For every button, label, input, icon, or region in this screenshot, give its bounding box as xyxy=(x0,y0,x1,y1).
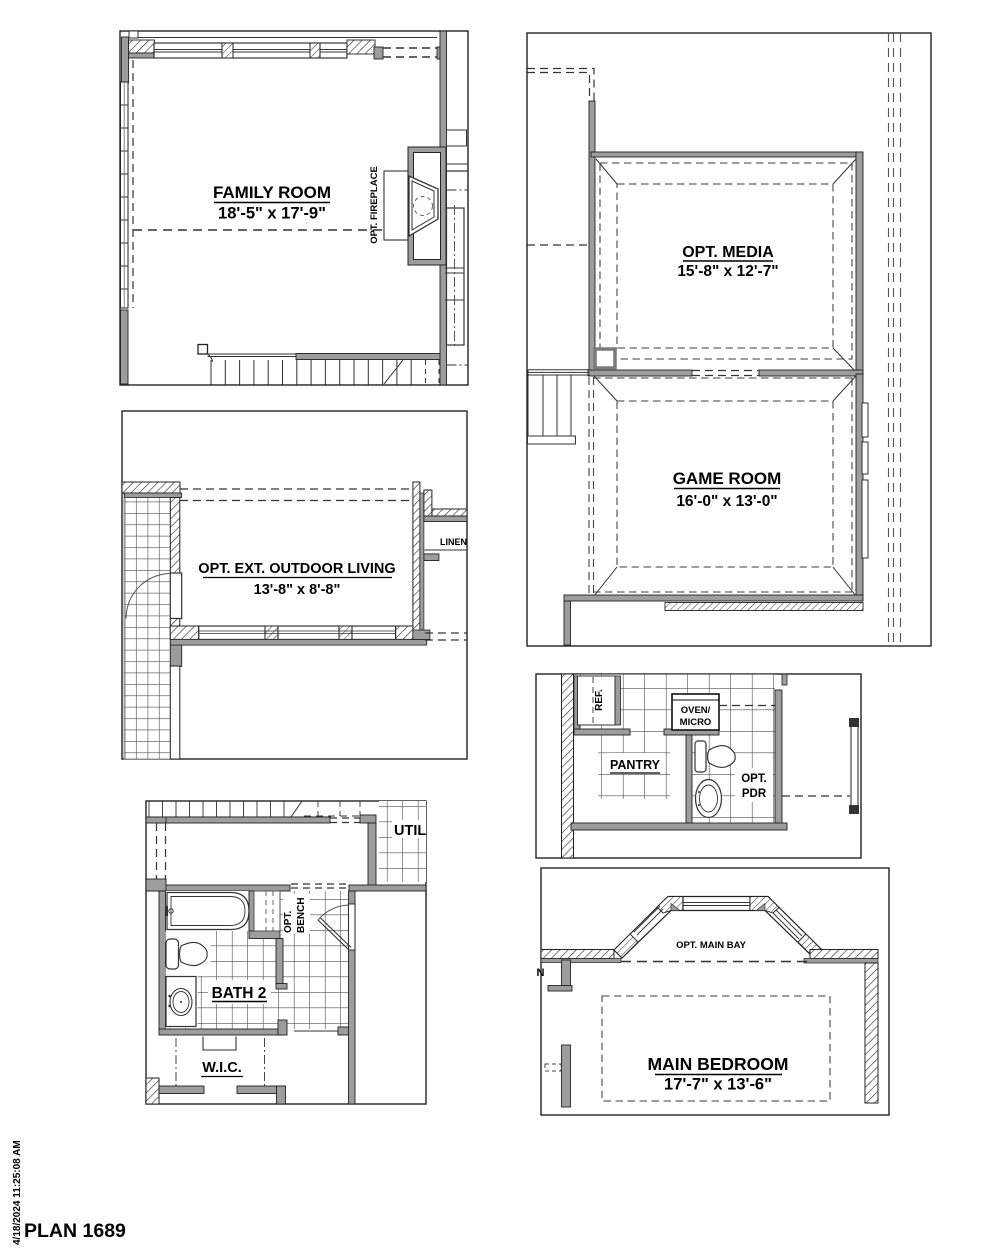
svg-text:UTIL: UTIL xyxy=(394,823,426,839)
svg-text:PANTRY: PANTRY xyxy=(610,758,661,772)
svg-text:16'-0" x 13'-0": 16'-0" x 13'-0" xyxy=(676,493,777,510)
svg-text:17'-7" x 13'-6": 17'-7" x 13'-6" xyxy=(664,1076,772,1094)
svg-text:MICRO: MICRO xyxy=(680,717,712,728)
svg-text:18'-5" x 17'-9": 18'-5" x 17'-9" xyxy=(218,205,326,223)
svg-text:PLAN 1689: PLAN 1689 xyxy=(24,1220,126,1242)
svg-text:N: N xyxy=(537,967,545,979)
svg-text:OPT. MAIN BAY: OPT. MAIN BAY xyxy=(676,940,747,951)
svg-text:BENCH: BENCH xyxy=(296,897,307,933)
svg-text:OPT. EXT. OUTDOOR LIVING: OPT. EXT. OUTDOOR LIVING xyxy=(198,561,395,577)
svg-text:13'-8" x 8'-8": 13'-8" x 8'-8" xyxy=(254,582,341,598)
svg-text:MAIN BEDROOM: MAIN BEDROOM xyxy=(648,1054,789,1074)
svg-text:4/18/2024 11:25:08 AM: 4/18/2024 11:25:08 AM xyxy=(12,1140,23,1245)
svg-text:GAME ROOM: GAME ROOM xyxy=(673,469,782,488)
svg-text:OPT.: OPT. xyxy=(741,773,767,785)
svg-text:OVEN/: OVEN/ xyxy=(681,705,711,716)
svg-text:OPT.: OPT. xyxy=(283,911,294,933)
svg-text:OPT. FIREPLACE: OPT. FIREPLACE xyxy=(369,166,380,244)
svg-text:LINEN: LINEN xyxy=(440,537,467,547)
svg-text:15'-8" x 12'-7": 15'-8" x 12'-7" xyxy=(677,263,778,280)
svg-text:BATH 2: BATH 2 xyxy=(212,985,267,1002)
svg-text:W.I.C.: W.I.C. xyxy=(202,1060,241,1076)
svg-text:REF.: REF. xyxy=(594,689,605,711)
svg-text:OPT. MEDIA: OPT. MEDIA xyxy=(682,244,774,261)
svg-text:PDR: PDR xyxy=(742,788,767,800)
svg-text:FAMILY ROOM: FAMILY ROOM xyxy=(213,183,331,202)
